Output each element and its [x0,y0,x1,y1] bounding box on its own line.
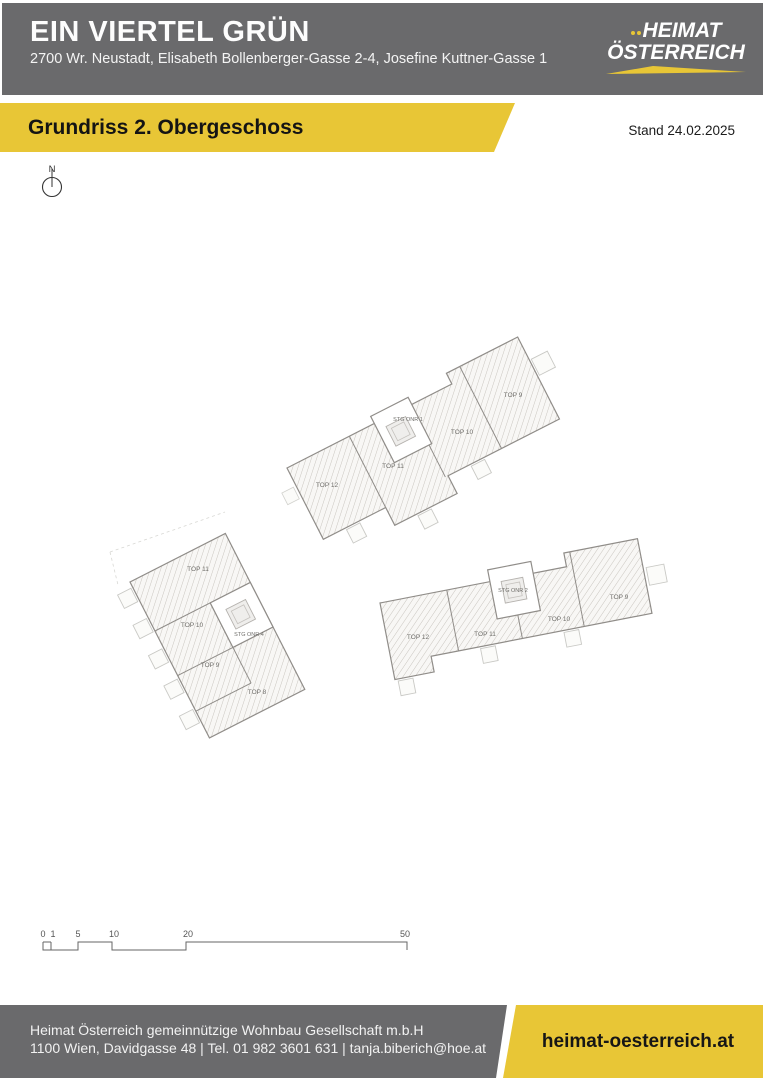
unit-label: TOP 10 [548,616,571,623]
footer-website: heimat-oesterreich.at [532,1031,734,1053]
scale-tick-label: 50 [400,929,410,939]
unit-label: TOP 11 [474,631,496,638]
logo-line-1: HEIMAT [605,20,747,42]
unit-label: TOP 12 [316,482,339,489]
balcony [398,678,416,696]
heimat-oesterreich-logo: HEIMAT ÖSTERREICH [605,20,747,75]
logo-dots-icon [631,19,643,42]
unit-label: TOP 9 [504,392,523,399]
unit-label: TOP 11 [187,566,209,573]
floorplan-building-north: TOP 12 TOP 11 STG ONR 1 TOP 10 TOP 9 [267,328,594,580]
floorplan-building-west: TOP 11 TOP 10 STG ONR 4 TOP 9 TOP 8 [115,533,305,745]
balcony [481,646,499,664]
scale-tick-label: 5 [75,929,80,939]
scale-tick-label: 0 [40,929,45,939]
north-arrow-icon: N [43,164,62,197]
page: EIN VIERTEL GRÜN 2700 Wr. Neustadt, Elis… [0,0,763,1080]
scale-bar: 0 1 5 10 20 50 [40,929,410,950]
header: EIN VIERTEL GRÜN 2700 Wr. Neustadt, Elis… [2,3,763,95]
scale-tick-label: 1 [50,929,55,939]
banner: Grundriss 2. Obergeschoss [0,103,515,152]
stairwell-label: STG ONR 2 [498,588,528,594]
logo-text-oesterreich: ÖSTERREICH [605,42,747,64]
balcony [646,564,667,585]
stand-date: Stand 24.02.2025 [628,123,735,138]
balcony [282,487,299,504]
unit-label: TOP 12 [407,634,430,641]
unit-label: TOP 9 [610,594,629,601]
banner-title: Grundriss 2. Obergeschoss [0,103,515,152]
unit-label: TOP 10 [181,622,204,629]
north-arrow-label: N [49,164,56,175]
stairwell-label: STG ONR 1 [393,417,423,423]
floorplan-building-east: TOP 12 TOP 11 STG ONR 2 TOP 10 TOP 9 [377,535,679,697]
scale-tick-label: 10 [109,929,119,939]
building-footprint [130,533,305,738]
unit-label: TOP 11 [382,463,404,470]
scale-tick-label: 20 [183,929,193,939]
unit-label: TOP 9 [201,662,220,669]
floorplan-drawing: N [0,160,763,960]
footer-website-box: heimat-oesterreich.at [503,1005,763,1078]
stairwell-label: STG ONR 4 [234,632,264,638]
unit-label: TOP 8 [248,689,267,696]
unit-label: TOP 10 [451,429,474,436]
balcony [564,630,582,648]
logo-text-heimat: HEIMAT [643,19,722,42]
logo-swoosh-icon [605,66,747,75]
